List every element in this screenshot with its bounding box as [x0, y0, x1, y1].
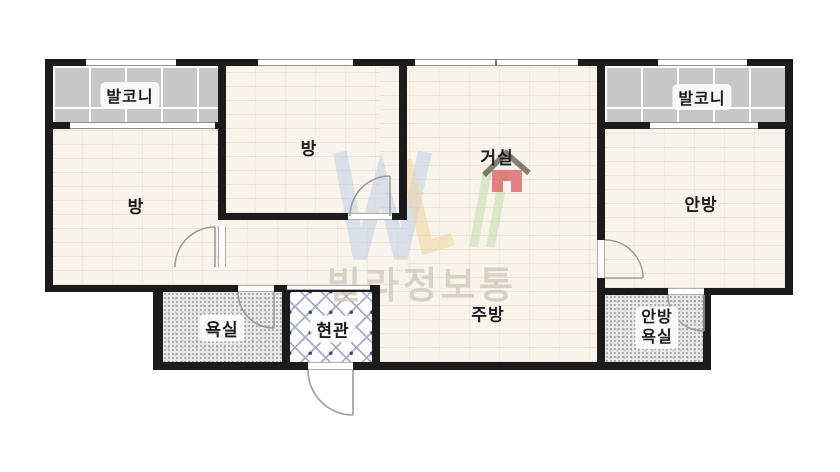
label-balcony-left: 발코니	[100, 82, 159, 108]
door-swings	[0, 0, 840, 472]
door-swing-front-door	[308, 370, 353, 415]
label-room-middle: 방	[301, 135, 318, 160]
label-master-bath-line2: 욕실	[641, 328, 672, 348]
label-balcony-right: 발코니	[672, 84, 731, 110]
label-master: 안방	[684, 191, 717, 216]
label-bath: 욕실	[199, 315, 244, 342]
door-swing-room-middle	[350, 176, 390, 216]
label-master-bath: 안방 욕실	[635, 307, 678, 349]
label-kitchen: 주방	[471, 301, 504, 326]
label-living: 거실	[480, 144, 513, 169]
door-swing-master	[605, 240, 643, 278]
floorplan: 빌라정보통	[0, 0, 840, 472]
label-room-left: 방	[128, 193, 145, 218]
label-master-bath-line1: 안방	[641, 308, 672, 328]
label-entry: 현관	[310, 316, 355, 343]
door-swing-room-left	[175, 227, 215, 267]
